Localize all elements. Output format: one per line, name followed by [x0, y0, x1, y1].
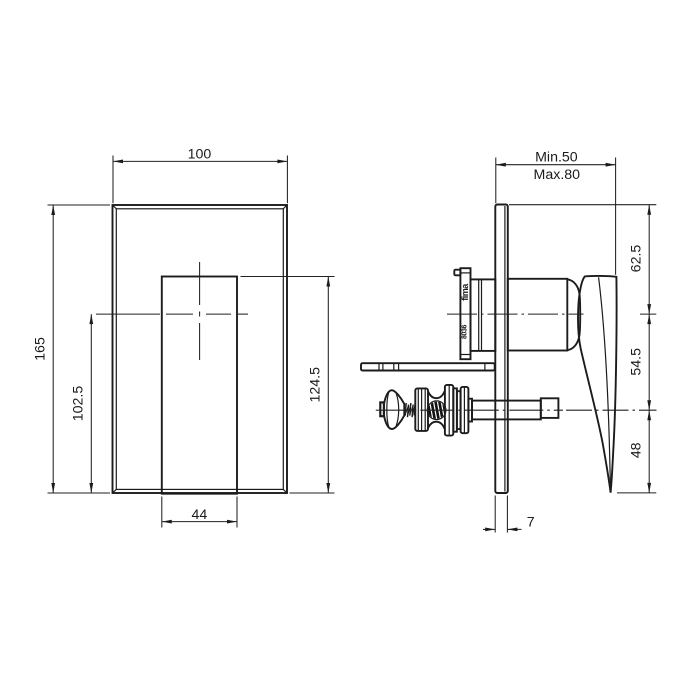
svg-text:54.5: 54.5	[629, 348, 645, 376]
svg-text:102.5: 102.5	[71, 386, 87, 422]
svg-text:fima: fima	[460, 283, 470, 301]
svg-text:124.5: 124.5	[308, 367, 324, 403]
svg-text:8036: 8036	[462, 325, 469, 339]
svg-text:7: 7	[527, 515, 535, 531]
svg-text:100: 100	[188, 147, 212, 163]
svg-text:48: 48	[629, 442, 645, 458]
svg-text:165: 165	[33, 337, 49, 361]
svg-text:Max.80: Max.80	[534, 167, 581, 183]
svg-text:Min.50: Min.50	[535, 149, 578, 165]
svg-text:44: 44	[192, 507, 208, 523]
svg-text:62.5: 62.5	[629, 245, 645, 273]
